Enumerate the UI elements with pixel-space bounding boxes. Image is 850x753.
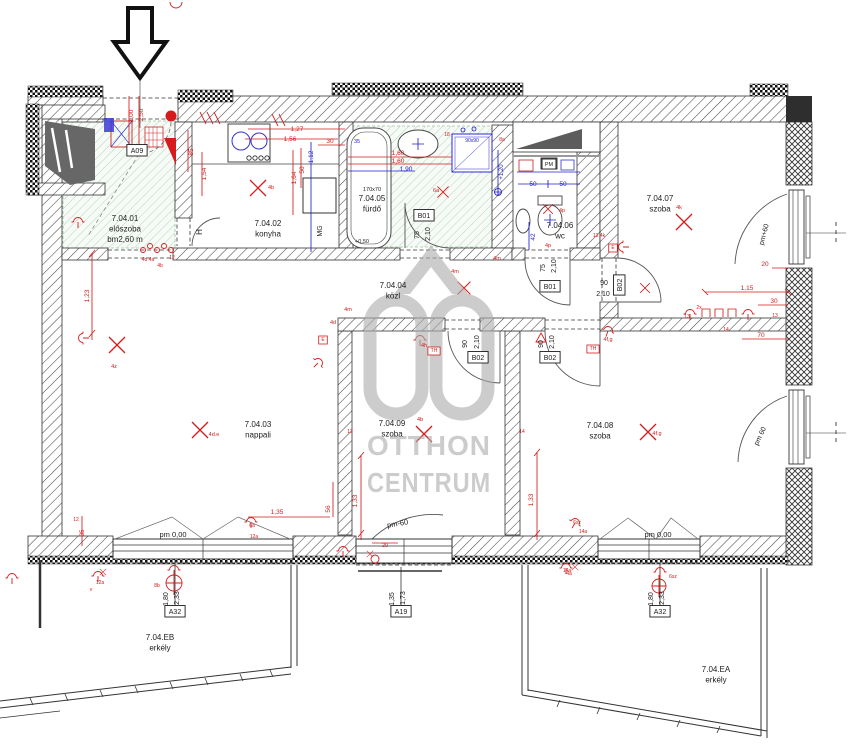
room-id: 7.04.02 — [255, 219, 282, 228]
dim-label-blue: 1,12 — [308, 150, 315, 163]
marker-code: 13 — [347, 429, 353, 435]
marker-code: 8a — [499, 137, 505, 143]
marker-code: 4m — [451, 269, 459, 275]
marker-code: 12 — [169, 255, 175, 261]
room-id: 7.04.EA — [702, 665, 731, 674]
dim-label-red: 70 — [757, 332, 765, 339]
dim-label-red: 85 — [188, 148, 195, 156]
marker-code: 4p — [545, 243, 551, 249]
marker-code: 4b — [268, 185, 274, 191]
room-id: 7.04.01 — [112, 214, 139, 223]
dim-label-red: 20 — [761, 261, 769, 268]
dim-label-black: 2,33 — [174, 591, 181, 605]
room-name: szoba — [649, 205, 671, 214]
toilet-tank — [538, 196, 562, 205]
room-name: konyha — [255, 230, 281, 239]
dim-label-black: +0,50 — [355, 239, 369, 245]
marker-code: 14a — [579, 529, 588, 535]
door-tag: A32 — [169, 609, 182, 616]
dim-label-black: 1,73 — [400, 591, 407, 605]
dim-label-red: 1,00 — [128, 109, 135, 122]
dim-label-red: 1,54 — [201, 167, 208, 180]
dim-label-black: 75 — [414, 231, 421, 239]
dim-label-black: 2,33 — [659, 591, 666, 605]
marker-code: 14 — [519, 429, 525, 435]
marker-code: 14a — [563, 568, 572, 574]
corner-block — [786, 96, 812, 122]
room-name: wc — [554, 232, 565, 241]
marker-code: 4b — [157, 263, 163, 269]
dim-label-red: 12a — [96, 580, 105, 586]
dim-label-red: 1,33 — [352, 494, 359, 507]
dim-label-red: 1,15 — [741, 285, 754, 292]
marker-code: 6a — [433, 188, 440, 194]
marker-code: 4h — [421, 343, 427, 349]
dim-label-red: 2,50 — [138, 108, 145, 121]
room-name: erkély — [705, 676, 726, 685]
red-tag: TH — [431, 348, 438, 354]
dim-label-red: 12 — [73, 517, 79, 523]
room-id: 7.04.EB — [146, 633, 174, 642]
dim-label-blue: 90x90 — [465, 138, 479, 144]
dim-label-blue: 42 — [530, 233, 537, 241]
dim-label-red: 50 — [299, 166, 306, 174]
dim-label-black: 2,10 — [596, 291, 610, 298]
dim-label-red: 20 — [382, 543, 388, 549]
dim-label-blue: 1,90 — [400, 166, 413, 173]
dim-label-red: 1,33 — [528, 493, 535, 506]
room-id: 7.04.08 — [587, 421, 614, 430]
watermark-line2: CENTRUM — [367, 467, 491, 498]
radiator — [145, 127, 163, 147]
marker-code: 4d 4a — [142, 257, 155, 263]
room-id: 7.04.09 — [379, 419, 406, 428]
room-extra: bm2,60 m — [107, 235, 143, 244]
dim-label-red: 1,35 — [271, 509, 284, 516]
dim-label-black: 90 — [538, 340, 545, 348]
marker-code: 13 — [772, 313, 778, 319]
marker-code: 18 — [444, 132, 450, 138]
dim-label-black: 2,10 — [474, 335, 481, 349]
marker-code: 4b — [417, 417, 423, 423]
door-tag: B02 — [617, 279, 624, 292]
dim-label-black: 2,10 — [551, 259, 558, 273]
floor-plan-image: OTTHON CENTRUM 7.04.01előszobabm2,60 m7.… — [0, 0, 850, 753]
marker-code: 4m — [493, 256, 501, 262]
door-tag: A32 — [654, 609, 667, 616]
dim-label-red: 1,56 — [284, 136, 297, 143]
dim-label-black: pm 0,00 — [644, 530, 671, 539]
dim-label-red: 30 — [770, 298, 778, 305]
dim-label-black: 2,10 — [549, 335, 556, 349]
room-name: előszoba — [109, 225, 142, 234]
red-tag: TH — [590, 346, 597, 352]
marker-code: 4k — [676, 205, 682, 211]
room-name: fürdő — [363, 205, 382, 214]
door-tag: PM — [545, 162, 554, 168]
washing-machine — [303, 178, 336, 213]
marker-code: 4d — [330, 320, 336, 326]
room-name: erkély — [149, 644, 170, 653]
door-tag: A19 — [395, 609, 408, 616]
marker-code: 4f.g — [652, 431, 661, 437]
marker-code: 2x — [696, 305, 702, 311]
room-id: 7.04.07 — [647, 194, 674, 203]
marker-code: 4p — [559, 208, 565, 214]
room-id: 7.04.04 — [380, 281, 407, 290]
room-size-note: 170x70 — [363, 187, 381, 193]
room-name: nappali — [245, 431, 271, 440]
marker-code: 4f,g — [603, 337, 612, 343]
floor-plan-svg: OTTHON CENTRUM 7.04.01előszobabm2,60 m7.… — [0, 0, 850, 753]
dim-label-black: pm 0,00 — [159, 530, 186, 539]
dim-label-blue: 50 — [529, 181, 537, 188]
marker-code: 6sz — [573, 520, 581, 526]
marker-code: 4d.e — [209, 432, 220, 438]
dim-label-red: 30 — [326, 138, 334, 145]
dim-label-black: 1,80 — [648, 592, 655, 606]
marker-code: 6a — [249, 523, 255, 529]
dim-label-red: 1,60 — [392, 158, 405, 165]
room-name: szoba — [381, 430, 403, 439]
dim-label-red: 35 — [80, 529, 86, 536]
door-tag: B01 — [418, 213, 431, 220]
marker-code: 4z — [111, 364, 117, 370]
marker-code: 12a — [250, 534, 259, 540]
door-tag: A09 — [131, 148, 144, 155]
room-id: 7.04.06 — [547, 221, 574, 230]
marker-code: 4m — [344, 307, 352, 313]
kitchen-sink — [228, 124, 270, 162]
dim-label-red: 56 — [325, 505, 332, 513]
dim-label-black: H — [195, 229, 204, 235]
door-tag: B02 — [472, 355, 485, 362]
dim-label-black: 1,35 — [389, 592, 396, 606]
room-name: szoba — [589, 432, 611, 441]
room-id: 7.04.05 — [359, 194, 386, 203]
door-tag: B01 — [544, 284, 557, 291]
dim-label-blue: 50 — [559, 181, 567, 188]
door-tag: B02 — [544, 355, 557, 362]
marker-code: 13 — [684, 314, 690, 320]
dim-label-black: MG — [317, 225, 324, 236]
dim-label-black: 90 — [462, 340, 469, 348]
dim-label-black: 75 — [540, 264, 547, 272]
dim-label-red: 1,64 — [291, 171, 298, 184]
room-id: 7.04.03 — [245, 420, 272, 429]
room-name: közl — [386, 292, 400, 301]
marker-code: 8b — [154, 583, 160, 589]
marker-code: 14 — [723, 327, 729, 333]
marker-code: 13 4k — [593, 233, 606, 239]
dim-label-red: 1,60 — [392, 150, 405, 157]
dim-label-red: 1,27 — [291, 126, 304, 133]
marker-code: 6sz — [669, 574, 677, 580]
dim-label-black: 90 — [600, 280, 608, 287]
dim-label-blue: 35 — [354, 139, 360, 145]
dim-label-black: 2,10 — [425, 227, 432, 241]
entrance-dot — [166, 111, 177, 122]
dim-label-blue: +1,20 — [499, 164, 505, 180]
wc-sink — [516, 209, 530, 233]
dim-label-black: 1,80 — [163, 592, 170, 606]
dim-label-red: 1,23 — [84, 289, 91, 302]
